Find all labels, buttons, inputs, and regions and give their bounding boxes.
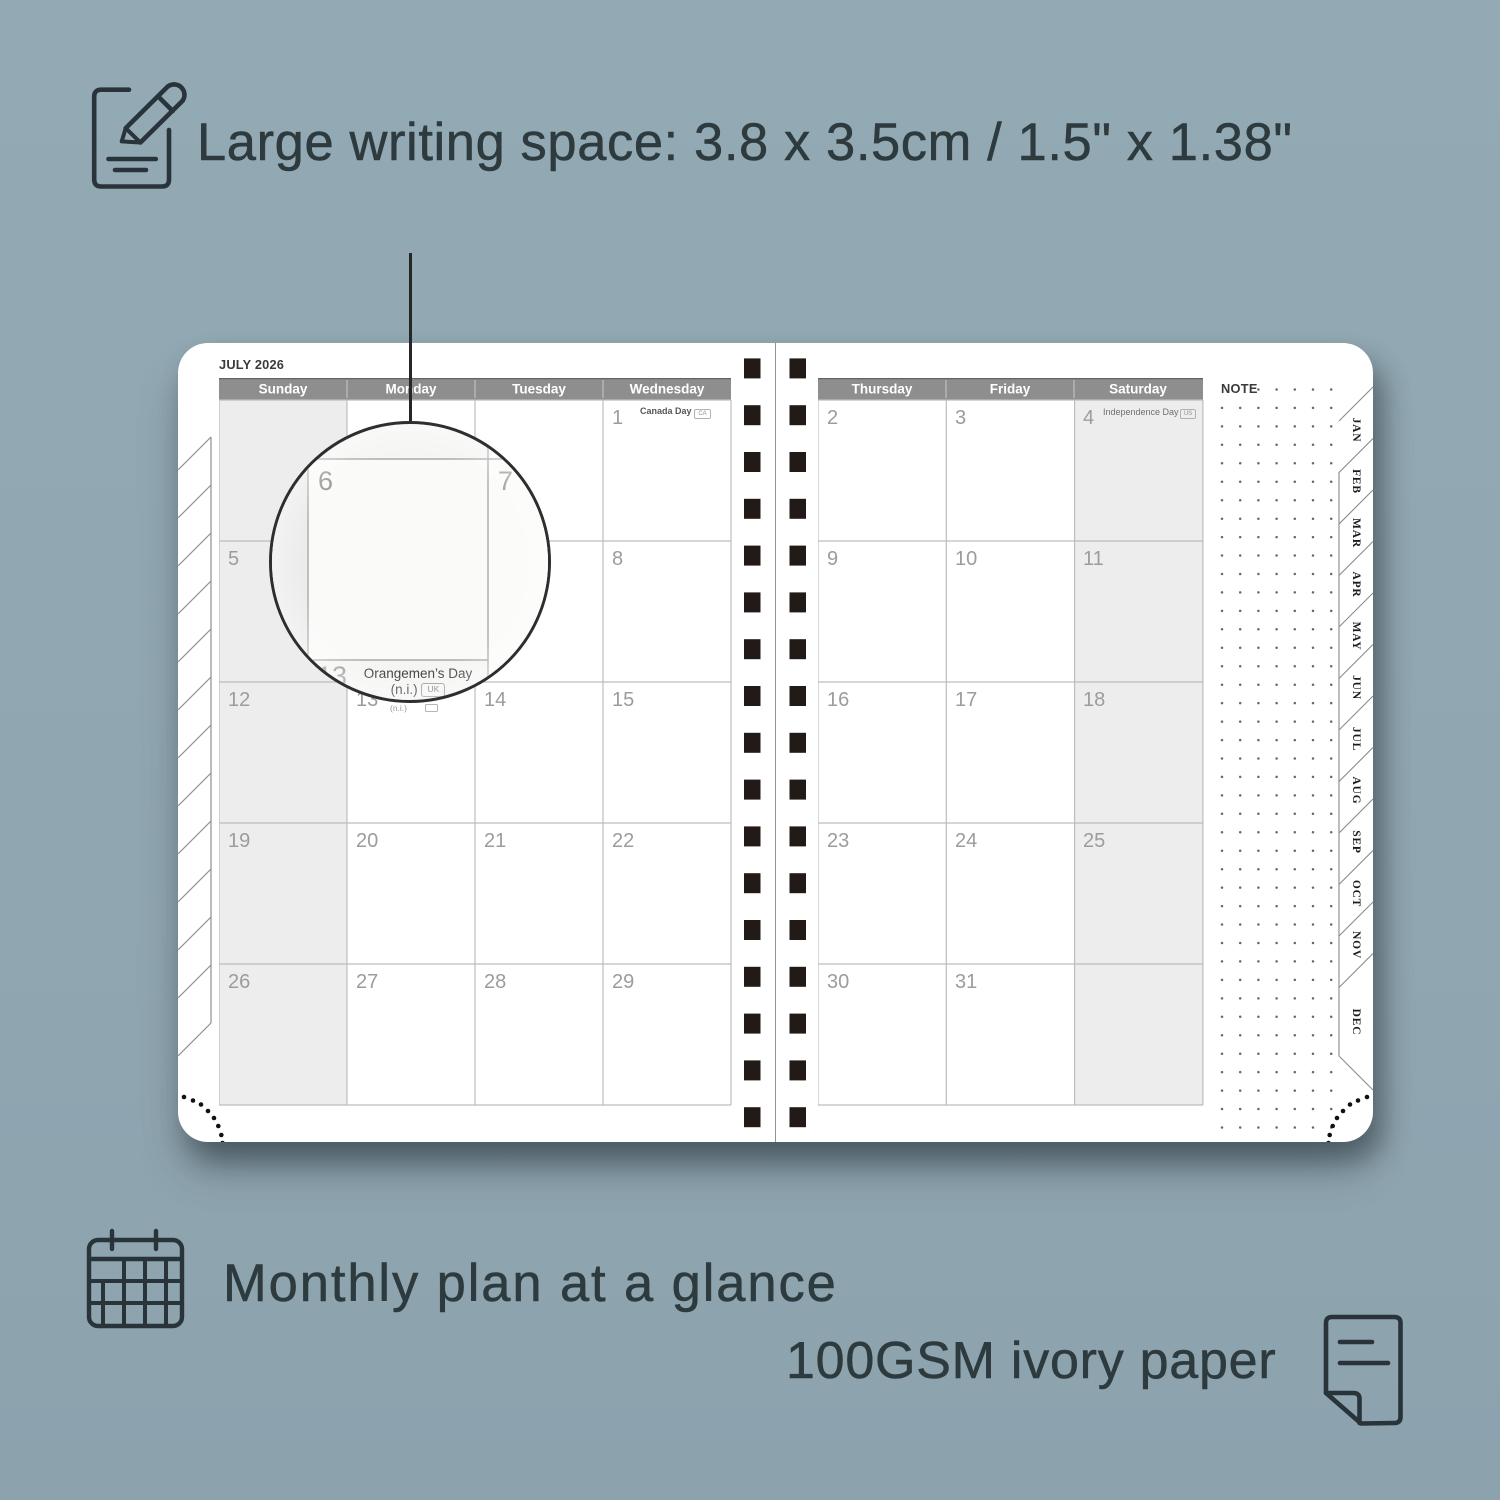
svg-text:NOV: NOV <box>1350 931 1362 959</box>
svg-text:24: 24 <box>955 830 977 852</box>
svg-text:3: 3 <box>955 407 966 429</box>
svg-text:Friday: Friday <box>990 382 1031 397</box>
svg-text:FEB: FEB <box>1350 469 1362 494</box>
svg-text:Thursday: Thursday <box>852 382 913 397</box>
svg-text:Saturday: Saturday <box>1109 382 1167 397</box>
svg-text:JUL: JUL <box>1350 727 1362 751</box>
svg-text:4: 4 <box>1083 407 1094 429</box>
svg-text:MAY: MAY <box>1350 622 1362 651</box>
svg-text:APR: APR <box>1350 571 1362 597</box>
svg-text:23: 23 <box>827 830 849 852</box>
svg-text:25: 25 <box>1083 830 1105 852</box>
svg-text:18: 18 <box>1083 689 1105 711</box>
svg-text:10: 10 <box>955 548 977 570</box>
svg-text:JAN: JAN <box>1350 418 1362 443</box>
svg-text:JUN: JUN <box>1350 675 1362 700</box>
svg-text:30: 30 <box>827 971 849 993</box>
svg-text:2: 2 <box>827 407 838 429</box>
svg-text:11: 11 <box>1083 548 1104 570</box>
svg-text:AUG: AUG <box>1350 777 1362 805</box>
svg-text:OCT: OCT <box>1350 880 1362 907</box>
svg-text:16: 16 <box>827 689 849 711</box>
svg-text:17: 17 <box>955 689 977 711</box>
svg-text:SEP: SEP <box>1350 830 1362 854</box>
svg-text:9: 9 <box>827 548 838 570</box>
svg-text:MAR: MAR <box>1350 518 1362 548</box>
svg-text:31: 31 <box>955 971 977 993</box>
svg-text:DEC: DEC <box>1350 1009 1362 1036</box>
